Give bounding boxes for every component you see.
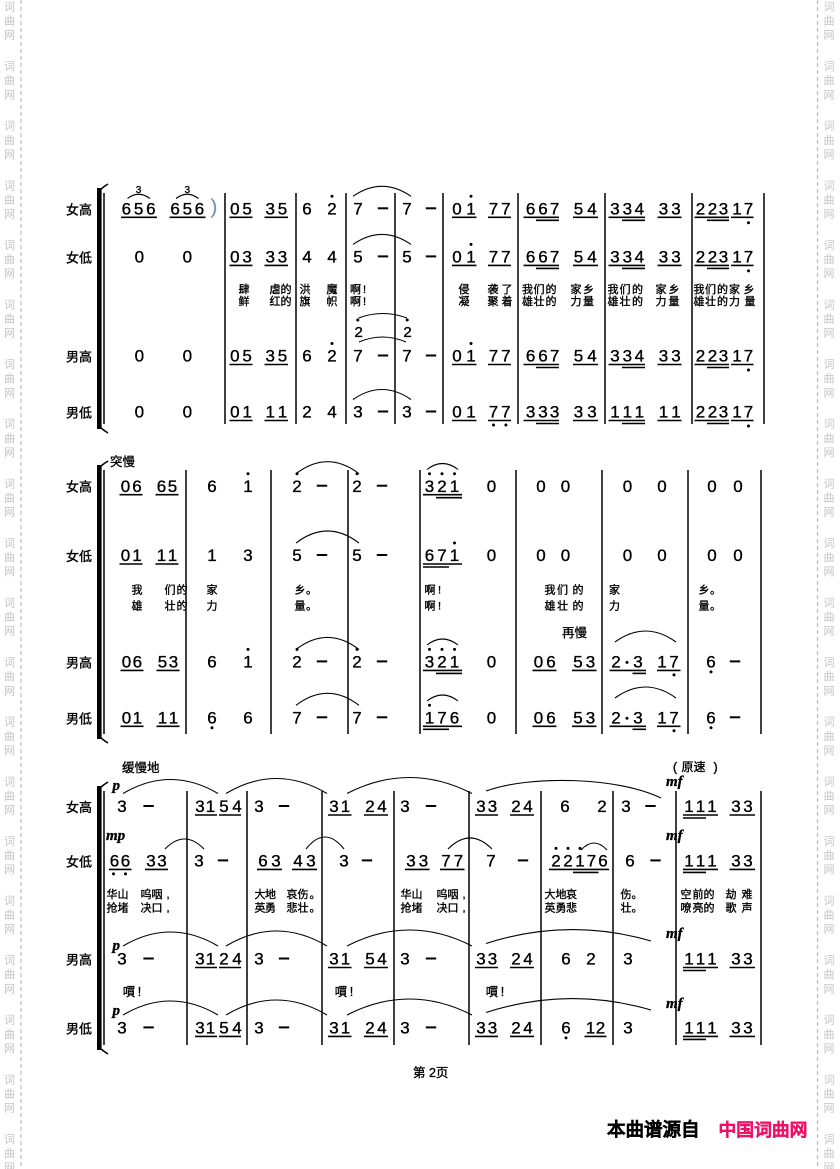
svg-text:的: 的 (632, 294, 643, 308)
svg-text:词: 词 (824, 60, 835, 73)
svg-text:1: 1 (684, 1019, 693, 1038)
svg-text:曲: 曲 (4, 909, 15, 922)
svg-text:0: 0 (707, 477, 716, 496)
svg-text:曲: 曲 (4, 968, 15, 981)
svg-text:!: ! (363, 284, 366, 296)
svg-text:0: 0 (183, 347, 192, 366)
svg-text:3: 3 (400, 1019, 409, 1038)
svg-text:3: 3 (623, 347, 632, 366)
svg-text:网: 网 (824, 1162, 835, 1169)
svg-text:词: 词 (824, 1014, 835, 1027)
svg-text:女高: 女高 (66, 202, 92, 217)
svg-text:词: 词 (4, 418, 15, 431)
svg-text:。: 。 (710, 600, 721, 612)
svg-text:的: 的 (632, 282, 643, 296)
svg-text:6: 6 (207, 709, 216, 728)
svg-text:7: 7 (353, 200, 362, 219)
svg-text:4: 4 (327, 248, 336, 267)
svg-text:0: 0 (487, 477, 496, 496)
svg-text:2: 2 (696, 248, 705, 267)
svg-text:2: 2 (302, 403, 311, 422)
svg-text:词: 词 (4, 895, 15, 908)
svg-text:词: 词 (824, 179, 835, 192)
svg-text:7: 7 (489, 403, 498, 422)
svg-text:5: 5 (158, 653, 167, 672)
svg-text:缓慢地: 缓慢地 (122, 761, 160, 775)
svg-text:): ) (211, 197, 218, 219)
svg-text:1: 1 (684, 950, 693, 969)
svg-text:,: , (166, 902, 169, 914)
svg-text:1: 1 (657, 709, 666, 728)
svg-text:网: 网 (4, 924, 15, 936)
svg-text:1: 1 (158, 709, 167, 728)
svg-text:壮: 壮 (557, 599, 568, 612)
svg-text:1: 1 (466, 248, 475, 267)
svg-text:。: 。 (310, 889, 321, 901)
svg-text:1: 1 (341, 797, 350, 816)
svg-text:3: 3 (743, 950, 752, 969)
svg-text:3: 3 (731, 797, 740, 816)
svg-text:嘪: 嘪 (123, 985, 136, 999)
svg-text:乡: 乡 (744, 283, 755, 296)
svg-text:悲: 悲 (566, 900, 577, 914)
svg-text:网: 网 (4, 566, 15, 578)
svg-text:的: 的 (573, 598, 584, 612)
svg-text:3: 3 (488, 797, 497, 816)
svg-text:6: 6 (526, 248, 535, 267)
svg-text:3: 3 (659, 248, 668, 267)
svg-text:量: 量 (669, 295, 680, 308)
svg-text:们: 们 (620, 282, 631, 296)
svg-text:5: 5 (242, 200, 251, 219)
svg-text:1: 1 (732, 347, 741, 366)
svg-text:3: 3 (329, 1019, 338, 1038)
svg-text:2: 2 (597, 797, 606, 816)
svg-text:3: 3 (586, 653, 595, 672)
svg-text:3: 3 (157, 852, 166, 871)
svg-text:曲: 曲 (824, 849, 835, 862)
svg-text:3: 3 (117, 1019, 126, 1038)
svg-text:1: 1 (657, 653, 666, 672)
svg-text:6: 6 (146, 200, 155, 219)
svg-text:2: 2 (437, 477, 446, 496)
svg-text:6: 6 (538, 200, 547, 219)
svg-text:5: 5 (242, 347, 251, 366)
svg-text:0: 0 (230, 347, 239, 366)
svg-text:1: 1 (206, 797, 215, 816)
svg-text:词: 词 (824, 895, 835, 908)
svg-text:聚: 聚 (488, 295, 499, 308)
svg-text:的: 的 (546, 282, 557, 296)
svg-text:mf: mf (666, 996, 685, 1012)
svg-text:曲: 曲 (824, 730, 835, 743)
svg-text:词: 词 (824, 239, 835, 252)
svg-text:6: 6 (706, 653, 715, 672)
svg-text:mf: mf (666, 774, 685, 790)
svg-text:壮: 壮 (621, 901, 632, 914)
svg-text:男高: 男高 (66, 350, 92, 365)
svg-text:网: 网 (824, 89, 835, 101)
svg-text:7: 7 (402, 347, 411, 366)
svg-text:7: 7 (669, 653, 678, 672)
svg-text:词: 词 (824, 1073, 835, 1086)
svg-text:雄: 雄 (132, 598, 143, 612)
svg-text:3: 3 (265, 200, 274, 219)
svg-text:。: 。 (632, 902, 643, 914)
svg-text:4: 4 (232, 950, 241, 969)
svg-text:2: 2 (352, 477, 361, 496)
svg-text:鲜: 鲜 (239, 294, 250, 308)
svg-text:!: ! (350, 985, 353, 999)
svg-text:旗: 旗 (300, 294, 311, 308)
svg-text:3: 3 (419, 852, 428, 871)
svg-text:曲: 曲 (4, 611, 15, 624)
svg-text:网: 网 (824, 268, 835, 280)
svg-text:0: 0 (487, 546, 496, 565)
svg-text:原速: 原速 (682, 760, 706, 774)
svg-text:呜: 呜 (141, 887, 152, 901)
svg-text:1: 1 (450, 477, 459, 496)
svg-text:的: 的 (177, 598, 188, 612)
svg-text:3: 3 (731, 950, 740, 969)
svg-text:2: 2 (551, 852, 560, 871)
svg-text:肆: 肆 (239, 283, 250, 296)
svg-text:曲: 曲 (824, 909, 835, 922)
svg-text:0: 0 (707, 546, 716, 565)
svg-text:7: 7 (550, 200, 559, 219)
svg-text:7: 7 (454, 852, 463, 871)
svg-text:0: 0 (561, 546, 570, 565)
svg-text:3: 3 (488, 950, 497, 969)
svg-text:3: 3 (610, 248, 619, 267)
svg-text:网: 网 (4, 328, 15, 340)
svg-text:7: 7 (489, 200, 498, 219)
svg-text:们: 们 (165, 582, 176, 596)
svg-text:抢: 抢 (107, 900, 118, 914)
svg-text:帜: 帜 (327, 294, 338, 308)
svg-text:本曲谱源自: 本曲谱源自 (607, 1119, 700, 1140)
svg-text:词: 词 (824, 775, 835, 788)
svg-text:网: 网 (4, 387, 15, 399)
svg-text:5: 5 (278, 200, 287, 219)
svg-text:1: 1 (157, 546, 166, 565)
svg-text:1: 1 (696, 852, 705, 871)
svg-text:网: 网 (4, 507, 15, 519)
svg-text:力: 力 (656, 295, 667, 308)
svg-text:7: 7 (744, 248, 753, 267)
svg-text:嘹: 嘹 (681, 901, 692, 914)
svg-text:1: 1 (206, 1019, 215, 1038)
svg-text:壮: 壮 (165, 599, 176, 612)
svg-text:网: 网 (4, 209, 15, 221)
svg-text:5: 5 (219, 1019, 228, 1038)
svg-text:曲: 曲 (824, 432, 835, 445)
svg-text:网: 网 (824, 387, 835, 399)
svg-text:3: 3 (254, 1019, 263, 1038)
svg-text:魔: 魔 (327, 282, 338, 296)
svg-text:2: 2 (365, 1019, 374, 1038)
svg-text:的: 的 (717, 282, 728, 296)
svg-text:伤: 伤 (621, 888, 632, 901)
svg-text:3: 3 (587, 403, 596, 422)
svg-text:7: 7 (489, 347, 498, 366)
svg-text:!: ! (438, 584, 441, 596)
svg-text:7: 7 (744, 347, 753, 366)
svg-text:词: 词 (4, 299, 15, 312)
svg-text:大: 大 (255, 887, 266, 901)
svg-text:3: 3 (425, 477, 434, 496)
svg-text:山: 山 (412, 888, 423, 901)
svg-text:6: 6 (302, 200, 311, 219)
svg-text:网: 网 (4, 1103, 15, 1115)
svg-text:曲: 曲 (4, 849, 15, 862)
svg-text:3: 3 (633, 653, 642, 672)
svg-text:3: 3 (550, 403, 559, 422)
svg-text:6: 6 (243, 709, 252, 728)
svg-text:1: 1 (278, 403, 287, 422)
svg-text:4: 4 (377, 1019, 386, 1038)
svg-text:1: 1 (684, 852, 693, 871)
svg-text:1: 1 (265, 403, 274, 422)
svg-text:。: 。 (632, 889, 643, 901)
svg-text:啊: 啊 (425, 599, 436, 612)
svg-text:3: 3 (278, 248, 287, 267)
svg-text:6: 6 (207, 477, 216, 496)
svg-text:0: 0 (452, 403, 461, 422)
svg-text:网: 网 (824, 805, 835, 817)
svg-text:量: 量 (295, 599, 306, 612)
svg-text:1: 1 (466, 200, 475, 219)
svg-text:词: 词 (4, 716, 15, 729)
svg-text:量: 量 (583, 295, 594, 308)
svg-text:曲: 曲 (4, 74, 15, 87)
svg-text:!: ! (363, 296, 366, 308)
svg-text:6: 6 (258, 852, 267, 871)
svg-text:5: 5 (134, 200, 143, 219)
svg-text:英: 英 (545, 900, 556, 914)
svg-text:2: 2 (586, 950, 595, 969)
svg-text:p: p (111, 1003, 121, 1019)
svg-text:3: 3 (117, 950, 126, 969)
svg-text:7: 7 (744, 200, 753, 219)
svg-text:我: 我 (132, 583, 143, 596)
svg-text:3: 3 (243, 546, 252, 565)
svg-text:5: 5 (353, 248, 362, 267)
svg-text:4: 4 (523, 1019, 532, 1038)
svg-text:难: 难 (742, 888, 753, 901)
svg-text:们: 们 (705, 282, 716, 296)
svg-text:3: 3 (719, 248, 728, 267)
svg-text:6: 6 (157, 477, 166, 496)
svg-text:7: 7 (352, 709, 361, 728)
svg-text:2: 2 (708, 248, 717, 267)
svg-text:网: 网 (824, 149, 835, 161)
svg-text:2: 2 (611, 709, 620, 728)
svg-text:3: 3 (185, 185, 191, 196)
svg-text:家: 家 (656, 282, 667, 296)
svg-text:1: 1 (671, 403, 680, 422)
svg-text:曲: 曲 (4, 1147, 15, 1160)
svg-text:6: 6 (302, 347, 311, 366)
svg-text:1: 1 (466, 347, 475, 366)
svg-text:我: 我 (694, 283, 705, 296)
svg-text:曲: 曲 (4, 1028, 15, 1041)
svg-text:力: 力 (729, 295, 740, 308)
svg-text:4: 4 (523, 797, 532, 816)
svg-text:0: 0 (230, 200, 239, 219)
svg-text:1: 1 (450, 653, 459, 672)
svg-text:1: 1 (696, 950, 705, 969)
svg-text:3: 3 (719, 200, 728, 219)
svg-text:词: 词 (824, 835, 835, 848)
svg-text:4: 4 (523, 950, 532, 969)
svg-text:6: 6 (110, 852, 119, 871)
svg-text:0: 0 (183, 403, 192, 422)
svg-text:们: 们 (534, 282, 545, 296)
svg-text:3: 3 (623, 950, 632, 969)
svg-text:3: 3 (339, 852, 348, 871)
svg-text:曲: 曲 (824, 1087, 835, 1100)
svg-text:前: 前 (693, 887, 704, 901)
svg-text:啊: 啊 (350, 295, 361, 308)
svg-text:0: 0 (487, 653, 496, 672)
svg-text:7: 7 (437, 546, 446, 565)
svg-text:呜: 呜 (437, 887, 448, 901)
svg-text:家: 家 (729, 282, 740, 296)
svg-text:3: 3 (623, 248, 632, 267)
svg-text:0: 0 (657, 477, 666, 496)
svg-text:网: 网 (824, 507, 835, 519)
svg-text:网: 网 (4, 447, 15, 459)
svg-text:壮: 壮 (534, 295, 545, 308)
svg-text:5: 5 (219, 797, 228, 816)
svg-text:乡: 乡 (699, 583, 710, 596)
svg-text:1: 1 (707, 950, 716, 969)
svg-text:量: 量 (699, 599, 710, 612)
svg-text:女高: 女高 (66, 800, 92, 815)
svg-text:6: 6 (170, 200, 179, 219)
svg-text:歌: 歌 (726, 900, 737, 914)
svg-text:5: 5 (168, 477, 177, 496)
svg-text:6: 6 (598, 852, 607, 871)
svg-text:3: 3 (476, 950, 485, 969)
svg-text:2: 2 (708, 403, 717, 422)
svg-text:网: 网 (824, 626, 835, 638)
svg-text:3: 3 (265, 248, 274, 267)
svg-text:2: 2 (511, 1019, 520, 1038)
svg-text:3: 3 (306, 852, 315, 871)
svg-text:网: 网 (824, 328, 835, 340)
svg-text:3: 3 (538, 403, 547, 422)
svg-text:2: 2 (696, 347, 705, 366)
svg-text:曲: 曲 (4, 372, 15, 385)
svg-text:3: 3 (329, 797, 338, 816)
svg-text:4: 4 (587, 248, 596, 267)
svg-text:词: 词 (4, 775, 15, 788)
svg-text:5: 5 (365, 950, 374, 969)
svg-text:词: 词 (824, 120, 835, 133)
svg-text:曲: 曲 (4, 730, 15, 743)
svg-text:,: , (462, 902, 465, 914)
svg-text:乡: 乡 (583, 283, 594, 296)
svg-text:网: 网 (824, 30, 835, 42)
svg-text:咽: 咽 (448, 888, 459, 901)
svg-text:壮: 壮 (705, 295, 716, 308)
svg-text:女低: 女低 (66, 854, 92, 869)
svg-text:2: 2 (511, 797, 520, 816)
svg-text:7: 7 (501, 200, 510, 219)
svg-text:抢: 抢 (401, 900, 412, 914)
svg-text:的: 的 (704, 887, 715, 901)
svg-text:男高: 男高 (66, 655, 92, 670)
svg-text:3: 3 (476, 1019, 485, 1038)
svg-text:,: , (462, 889, 465, 901)
svg-text:网: 网 (824, 745, 835, 757)
svg-text:mf: mf (666, 926, 685, 942)
svg-text:女高: 女高 (66, 480, 92, 495)
svg-text:6: 6 (133, 653, 142, 672)
svg-text:5: 5 (573, 709, 582, 728)
svg-text:7: 7 (501, 347, 510, 366)
svg-text:词: 词 (4, 120, 15, 133)
svg-text:袭: 袭 (488, 282, 499, 296)
svg-text:网: 网 (4, 983, 15, 995)
svg-text:7: 7 (353, 347, 362, 366)
svg-text:网: 网 (4, 805, 15, 817)
svg-text:4: 4 (587, 200, 596, 219)
svg-text:曲: 曲 (4, 491, 15, 504)
svg-text:5: 5 (292, 546, 301, 565)
svg-text:伤: 伤 (298, 888, 309, 901)
svg-text:。: 。 (310, 902, 321, 914)
svg-text:网: 网 (4, 268, 15, 280)
svg-text:词: 词 (4, 358, 15, 371)
svg-text:词: 词 (4, 954, 15, 967)
svg-text:6: 6 (195, 200, 204, 219)
svg-text:堵: 堵 (412, 900, 423, 914)
svg-text:网: 网 (824, 447, 835, 459)
svg-text:1: 1 (586, 1019, 595, 1038)
svg-text:!: ! (438, 600, 441, 612)
svg-text:0: 0 (135, 403, 144, 422)
svg-text:的: 的 (281, 282, 292, 296)
svg-text:亮: 亮 (693, 900, 704, 914)
svg-text:3: 3 (488, 1019, 497, 1038)
svg-text:曲: 曲 (824, 670, 835, 683)
svg-text:5: 5 (352, 546, 361, 565)
svg-text:3: 3 (476, 797, 485, 816)
svg-text:。: 。 (306, 584, 317, 596)
svg-text:曲: 曲 (824, 968, 835, 981)
svg-text:英: 英 (255, 900, 266, 914)
svg-text:网: 网 (824, 1103, 835, 1115)
svg-text:网: 网 (824, 924, 835, 936)
svg-text:mf: mf (666, 828, 685, 844)
svg-text:0: 0 (135, 347, 144, 366)
svg-text:mp: mp (106, 828, 126, 844)
svg-text:曲: 曲 (4, 313, 15, 326)
svg-text:再慢: 再慢 (562, 626, 588, 640)
svg-text:0: 0 (623, 546, 632, 565)
svg-text:3: 3 (659, 200, 668, 219)
svg-text:3: 3 (719, 403, 728, 422)
svg-text:!: ! (138, 985, 141, 999)
svg-text:1: 1 (450, 546, 459, 565)
svg-text:7: 7 (437, 709, 446, 728)
svg-text:7: 7 (550, 347, 559, 366)
svg-text:中国词曲网: 中国词曲网 (719, 1119, 808, 1140)
svg-text:3: 3 (195, 797, 204, 816)
